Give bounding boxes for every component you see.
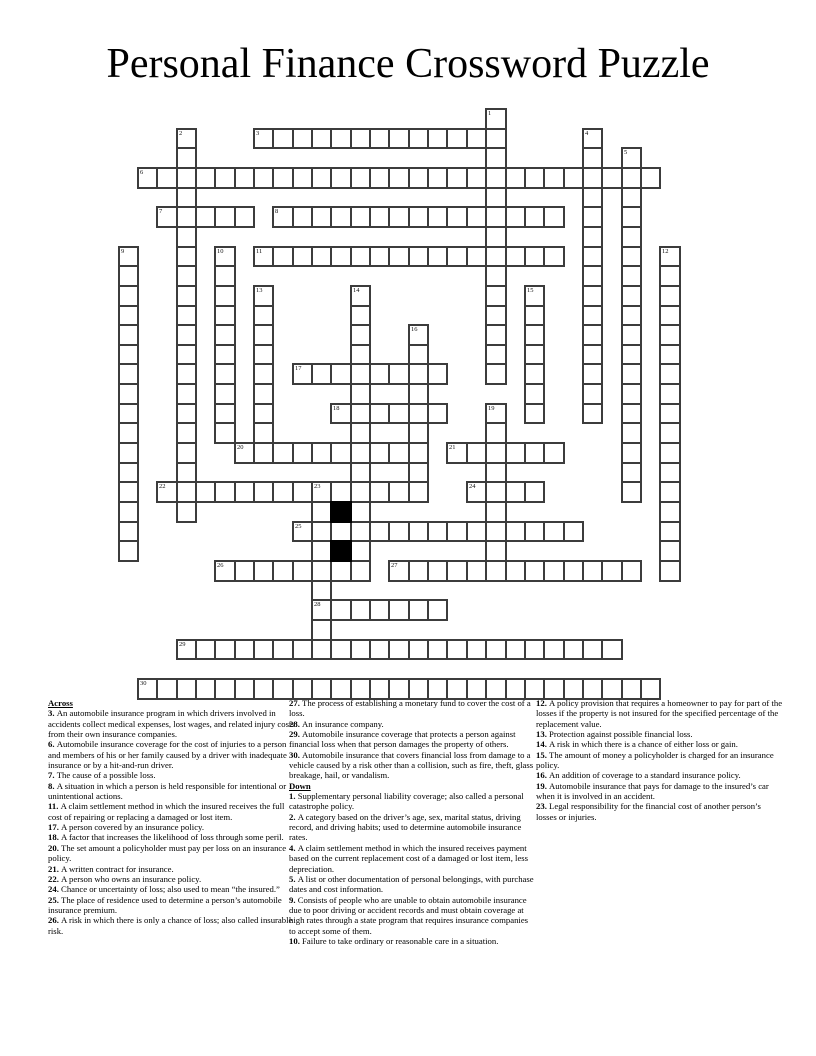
grid-cell[interactable] <box>253 344 274 365</box>
grid-cell[interactable] <box>427 128 448 149</box>
grid-cell[interactable] <box>659 462 681 483</box>
grid-cell[interactable] <box>582 206 603 228</box>
grid-cell[interactable] <box>427 560 448 582</box>
grid-cell[interactable] <box>195 678 216 700</box>
grid-cell[interactable] <box>659 501 681 523</box>
grid-cell[interactable] <box>408 560 429 582</box>
grid-cell[interactable] <box>659 344 681 365</box>
grid-cell[interactable] <box>543 521 565 542</box>
grid-cell[interactable] <box>582 560 603 582</box>
grid-cell[interactable] <box>601 560 623 582</box>
grid-cell[interactable] <box>292 639 313 660</box>
grid-cell[interactable] <box>427 403 448 424</box>
grid-cell[interactable] <box>621 383 642 405</box>
grid-cell[interactable] <box>292 246 313 267</box>
grid-cell[interactable]: 19 <box>485 403 507 424</box>
grid-cell[interactable] <box>640 167 661 189</box>
grid-cell[interactable] <box>350 560 371 582</box>
grid-cell[interactable] <box>253 481 274 503</box>
grid-cell[interactable]: 14 <box>350 285 371 307</box>
grid-cell[interactable]: 3 <box>253 128 274 149</box>
grid-cell[interactable] <box>505 442 526 464</box>
grid-cell[interactable] <box>272 167 294 189</box>
grid-cell[interactable] <box>659 422 681 444</box>
grid-cell[interactable]: 2 <box>176 128 197 149</box>
grid-cell[interactable]: 13 <box>253 285 274 307</box>
grid-cell[interactable] <box>118 324 139 346</box>
grid-cell[interactable] <box>659 285 681 307</box>
grid-cell[interactable] <box>176 226 197 248</box>
grid-cell[interactable] <box>563 560 584 582</box>
grid-cell[interactable] <box>485 678 507 700</box>
grid-cell[interactable] <box>659 265 681 287</box>
grid-cell[interactable] <box>214 422 236 444</box>
grid-cell[interactable]: 21 <box>446 442 468 464</box>
grid-cell[interactable] <box>118 540 139 562</box>
grid-cell[interactable] <box>485 462 507 483</box>
grid-cell[interactable] <box>350 383 371 405</box>
grid-cell[interactable] <box>485 324 507 346</box>
grid-cell[interactable]: 12 <box>659 246 681 267</box>
grid-cell[interactable] <box>466 442 487 464</box>
grid-cell[interactable] <box>195 206 216 228</box>
grid-cell[interactable] <box>350 442 371 464</box>
grid-cell[interactable] <box>369 599 390 621</box>
grid-cell[interactable] <box>330 678 352 700</box>
grid-cell[interactable] <box>543 167 565 189</box>
grid-cell[interactable]: 7 <box>156 206 178 228</box>
grid-cell[interactable] <box>621 226 642 248</box>
grid-cell[interactable] <box>582 678 603 700</box>
grid-cell[interactable] <box>408 639 429 660</box>
grid-cell[interactable]: 8 <box>272 206 294 228</box>
grid-cell[interactable] <box>524 481 545 503</box>
grid-cell[interactable] <box>214 383 236 405</box>
grid-cell[interactable] <box>311 442 332 464</box>
grid-cell[interactable] <box>311 619 332 641</box>
grid-cell[interactable] <box>582 226 603 248</box>
grid-cell[interactable] <box>427 678 448 700</box>
grid-cell[interactable] <box>446 678 468 700</box>
grid-cell[interactable] <box>272 481 294 503</box>
grid-cell[interactable] <box>427 206 448 228</box>
grid-cell[interactable] <box>253 305 274 326</box>
grid-cell[interactable] <box>621 560 642 582</box>
grid-cell[interactable] <box>253 383 274 405</box>
grid-cell[interactable] <box>505 560 526 582</box>
grid-cell[interactable] <box>408 167 429 189</box>
grid-cell[interactable] <box>524 639 545 660</box>
grid-cell[interactable] <box>156 678 178 700</box>
grid-cell[interactable] <box>485 639 507 660</box>
grid-cell[interactable] <box>408 246 429 267</box>
grid-cell[interactable] <box>505 246 526 267</box>
grid-cell[interactable] <box>176 481 197 503</box>
grid-cell[interactable] <box>408 344 429 365</box>
grid-cell[interactable]: 18 <box>330 403 352 424</box>
grid-cell[interactable] <box>659 560 681 582</box>
grid-cell[interactable]: 16 <box>408 324 429 346</box>
grid-cell[interactable] <box>369 403 390 424</box>
grid-cell[interactable] <box>505 206 526 228</box>
grid-cell[interactable] <box>272 246 294 267</box>
grid-cell[interactable] <box>311 128 332 149</box>
grid-cell[interactable] <box>176 383 197 405</box>
grid-cell[interactable] <box>214 344 236 365</box>
grid-cell[interactable] <box>330 599 352 621</box>
grid-cell[interactable] <box>292 560 313 582</box>
grid-cell[interactable] <box>582 167 603 189</box>
grid-cell[interactable] <box>524 363 545 385</box>
grid-cell[interactable] <box>563 167 584 189</box>
grid-cell[interactable] <box>388 167 410 189</box>
grid-cell[interactable] <box>330 521 352 542</box>
grid-cell[interactable] <box>563 521 584 542</box>
grid-cell[interactable] <box>466 167 487 189</box>
grid-cell[interactable] <box>176 324 197 346</box>
grid-cell[interactable] <box>311 363 332 385</box>
grid-cell[interactable] <box>427 639 448 660</box>
grid-cell[interactable] <box>621 285 642 307</box>
grid-cell[interactable] <box>118 344 139 365</box>
grid-cell[interactable] <box>195 481 216 503</box>
grid-cell[interactable] <box>350 501 371 523</box>
grid-cell[interactable] <box>369 481 390 503</box>
grid-cell[interactable] <box>176 167 197 189</box>
grid-cell[interactable] <box>659 442 681 464</box>
grid-cell[interactable]: 11 <box>253 246 274 267</box>
grid-cell[interactable] <box>234 639 255 660</box>
grid-cell[interactable] <box>408 462 429 483</box>
grid-cell[interactable] <box>195 639 216 660</box>
grid-cell[interactable] <box>176 187 197 208</box>
grid-cell[interactable] <box>485 128 507 149</box>
grid-cell[interactable] <box>311 540 332 562</box>
grid-cell[interactable] <box>621 206 642 228</box>
grid-cell[interactable] <box>466 639 487 660</box>
grid-cell[interactable]: 22 <box>156 481 178 503</box>
grid-cell[interactable] <box>176 305 197 326</box>
grid-cell[interactable] <box>330 560 352 582</box>
grid-cell[interactable]: 9 <box>118 246 139 267</box>
grid-cell[interactable] <box>176 344 197 365</box>
grid-cell[interactable] <box>485 246 507 267</box>
grid-cell[interactable] <box>330 167 352 189</box>
grid-cell[interactable] <box>427 167 448 189</box>
grid-cell[interactable] <box>350 462 371 483</box>
grid-cell[interactable] <box>388 363 410 385</box>
grid-cell[interactable] <box>214 481 236 503</box>
grid-cell[interactable] <box>621 246 642 267</box>
grid-cell[interactable] <box>485 206 507 228</box>
grid-cell[interactable] <box>408 363 429 385</box>
grid-cell[interactable] <box>118 403 139 424</box>
grid-cell[interactable]: 15 <box>524 285 545 307</box>
grid-cell[interactable] <box>485 226 507 248</box>
grid-cell[interactable] <box>350 639 371 660</box>
grid-cell[interactable] <box>350 246 371 267</box>
grid-cell[interactable] <box>582 265 603 287</box>
grid-cell[interactable] <box>582 147 603 169</box>
grid-cell[interactable] <box>543 442 565 464</box>
grid-cell[interactable] <box>621 187 642 208</box>
grid-cell[interactable] <box>582 305 603 326</box>
grid-cell[interactable] <box>621 422 642 444</box>
grid-cell[interactable] <box>408 206 429 228</box>
grid-cell[interactable] <box>601 639 623 660</box>
grid-cell[interactable] <box>369 639 390 660</box>
grid-cell[interactable] <box>485 501 507 523</box>
grid-cell[interactable] <box>485 285 507 307</box>
grid-cell[interactable] <box>118 285 139 307</box>
grid-cell[interactable] <box>563 678 584 700</box>
grid-cell[interactable] <box>621 167 642 189</box>
grid-cell[interactable] <box>446 167 468 189</box>
grid-cell[interactable] <box>543 678 565 700</box>
grid-cell[interactable] <box>524 324 545 346</box>
grid-cell[interactable] <box>311 206 332 228</box>
grid-cell[interactable] <box>176 403 197 424</box>
grid-cell[interactable] <box>485 422 507 444</box>
grid-cell[interactable]: 10 <box>214 246 236 267</box>
grid-cell[interactable] <box>408 442 429 464</box>
grid-cell[interactable] <box>176 147 197 169</box>
grid-cell[interactable] <box>311 639 332 660</box>
grid-cell[interactable] <box>350 599 371 621</box>
grid-cell[interactable] <box>350 324 371 346</box>
grid-cell[interactable] <box>621 462 642 483</box>
grid-cell[interactable] <box>176 206 197 228</box>
grid-cell[interactable] <box>446 521 468 542</box>
grid-cell[interactable] <box>234 560 255 582</box>
grid-cell[interactable] <box>330 363 352 385</box>
grid-cell[interactable] <box>408 422 429 444</box>
grid-cell[interactable] <box>659 540 681 562</box>
grid-cell[interactable] <box>659 481 681 503</box>
grid-cell[interactable]: 17 <box>292 363 313 385</box>
grid-cell[interactable] <box>253 560 274 582</box>
grid-cell[interactable] <box>214 206 236 228</box>
grid-cell[interactable] <box>524 678 545 700</box>
grid-cell[interactable] <box>543 246 565 267</box>
grid-cell[interactable] <box>350 521 371 542</box>
grid-cell[interactable] <box>350 678 371 700</box>
grid-cell[interactable] <box>621 403 642 424</box>
grid-cell[interactable] <box>621 265 642 287</box>
grid-cell[interactable] <box>350 403 371 424</box>
grid-cell[interactable] <box>176 422 197 444</box>
grid-cell[interactable] <box>214 265 236 287</box>
grid-cell[interactable] <box>350 422 371 444</box>
grid-cell[interactable] <box>330 442 352 464</box>
grid-cell[interactable] <box>330 206 352 228</box>
grid-cell[interactable] <box>524 246 545 267</box>
grid-cell[interactable] <box>388 639 410 660</box>
grid-cell[interactable] <box>485 560 507 582</box>
grid-cell[interactable] <box>311 246 332 267</box>
grid-cell[interactable] <box>350 344 371 365</box>
grid-cell[interactable] <box>253 422 274 444</box>
grid-cell[interactable] <box>292 128 313 149</box>
grid-cell[interactable] <box>272 560 294 582</box>
grid-cell[interactable] <box>582 187 603 208</box>
grid-cell[interactable]: 23 <box>311 481 332 503</box>
grid-cell[interactable] <box>388 246 410 267</box>
grid-cell[interactable] <box>118 422 139 444</box>
grid-cell[interactable]: 30 <box>137 678 158 700</box>
grid-cell[interactable] <box>524 167 545 189</box>
grid-cell[interactable] <box>350 481 371 503</box>
grid-cell[interactable]: 5 <box>621 147 642 169</box>
grid-cell[interactable] <box>563 639 584 660</box>
grid-cell[interactable] <box>118 501 139 523</box>
grid-cell[interactable] <box>621 344 642 365</box>
grid-cell[interactable] <box>466 521 487 542</box>
grid-cell[interactable] <box>427 521 448 542</box>
grid-cell[interactable] <box>582 403 603 424</box>
grid-cell[interactable] <box>408 521 429 542</box>
grid-cell[interactable] <box>350 167 371 189</box>
grid-cell[interactable] <box>505 639 526 660</box>
grid-cell[interactable] <box>582 285 603 307</box>
grid-cell[interactable] <box>466 128 487 149</box>
grid-cell[interactable] <box>621 363 642 385</box>
grid-cell[interactable] <box>311 521 332 542</box>
grid-cell[interactable] <box>659 521 681 542</box>
grid-cell[interactable] <box>311 501 332 523</box>
grid-cell[interactable] <box>253 324 274 346</box>
grid-cell[interactable] <box>118 305 139 326</box>
grid-cell[interactable]: 25 <box>292 521 313 542</box>
grid-cell[interactable] <box>621 442 642 464</box>
grid-cell[interactable] <box>350 363 371 385</box>
grid-cell[interactable] <box>118 521 139 542</box>
grid-cell[interactable] <box>524 344 545 365</box>
grid-cell[interactable] <box>485 265 507 287</box>
grid-cell[interactable] <box>446 128 468 149</box>
grid-cell[interactable] <box>118 442 139 464</box>
grid-cell[interactable] <box>176 265 197 287</box>
grid-cell[interactable] <box>156 167 178 189</box>
grid-cell[interactable] <box>350 305 371 326</box>
grid-cell[interactable]: 28 <box>311 599 332 621</box>
grid-cell[interactable] <box>524 403 545 424</box>
grid-cell[interactable] <box>446 206 468 228</box>
grid-cell[interactable] <box>369 246 390 267</box>
grid-cell[interactable] <box>176 462 197 483</box>
grid-cell[interactable] <box>292 206 313 228</box>
grid-cell[interactable] <box>214 678 236 700</box>
grid-cell[interactable] <box>118 383 139 405</box>
grid-cell[interactable] <box>505 678 526 700</box>
grid-cell[interactable] <box>311 580 332 601</box>
grid-cell[interactable] <box>408 481 429 503</box>
grid-cell[interactable] <box>582 363 603 385</box>
grid-cell[interactable] <box>388 678 410 700</box>
grid-cell[interactable] <box>272 678 294 700</box>
grid-cell[interactable] <box>659 383 681 405</box>
grid-cell[interactable] <box>446 639 468 660</box>
grid-cell[interactable] <box>621 305 642 326</box>
grid-cell[interactable] <box>272 639 294 660</box>
grid-cell[interactable] <box>485 167 507 189</box>
grid-cell[interactable] <box>466 246 487 267</box>
grid-cell[interactable] <box>582 383 603 405</box>
grid-cell[interactable] <box>214 324 236 346</box>
grid-cell[interactable] <box>234 167 255 189</box>
grid-cell[interactable] <box>485 187 507 208</box>
grid-cell[interactable] <box>388 521 410 542</box>
grid-cell[interactable] <box>330 246 352 267</box>
grid-cell[interactable] <box>524 521 545 542</box>
grid-cell[interactable] <box>292 678 313 700</box>
grid-cell[interactable] <box>311 560 332 582</box>
grid-cell[interactable] <box>388 206 410 228</box>
grid-cell[interactable] <box>659 305 681 326</box>
grid-cell[interactable] <box>214 639 236 660</box>
grid-cell[interactable] <box>388 403 410 424</box>
grid-cell[interactable] <box>427 363 448 385</box>
grid-cell[interactable]: 6 <box>137 167 158 189</box>
grid-cell[interactable]: 4 <box>582 128 603 149</box>
grid-cell[interactable] <box>485 540 507 562</box>
grid-cell[interactable] <box>195 167 216 189</box>
grid-cell[interactable] <box>272 442 294 464</box>
grid-cell[interactable] <box>350 206 371 228</box>
grid-cell[interactable] <box>659 403 681 424</box>
grid-cell[interactable] <box>330 639 352 660</box>
grid-cell[interactable] <box>543 560 565 582</box>
grid-cell[interactable] <box>311 678 332 700</box>
grid-cell[interactable] <box>369 206 390 228</box>
grid-cell[interactable] <box>466 678 487 700</box>
grid-cell[interactable] <box>582 639 603 660</box>
grid-cell[interactable] <box>408 128 429 149</box>
grid-cell[interactable]: 29 <box>176 639 197 660</box>
grid-cell[interactable] <box>214 305 236 326</box>
grid-cell[interactable] <box>446 246 468 267</box>
grid-cell[interactable] <box>485 344 507 365</box>
grid-cell[interactable] <box>601 167 623 189</box>
grid-cell[interactable] <box>330 481 352 503</box>
grid-cell[interactable] <box>369 363 390 385</box>
grid-cell[interactable] <box>543 206 565 228</box>
grid-cell[interactable] <box>601 678 623 700</box>
grid-cell[interactable] <box>253 363 274 385</box>
grid-cell[interactable] <box>369 678 390 700</box>
grid-cell[interactable] <box>485 521 507 542</box>
grid-cell[interactable] <box>350 128 371 149</box>
grid-cell[interactable] <box>524 206 545 228</box>
grid-cell[interactable]: 20 <box>234 442 255 464</box>
grid-cell[interactable] <box>214 403 236 424</box>
grid-cell[interactable] <box>524 305 545 326</box>
grid-cell[interactable] <box>505 481 526 503</box>
grid-cell[interactable] <box>485 442 507 464</box>
grid-cell[interactable] <box>659 324 681 346</box>
grid-cell[interactable] <box>253 678 274 700</box>
grid-cell[interactable] <box>659 363 681 385</box>
grid-cell[interactable] <box>582 246 603 267</box>
grid-cell[interactable] <box>369 442 390 464</box>
grid-cell[interactable] <box>234 481 255 503</box>
grid-cell[interactable] <box>408 678 429 700</box>
grid-cell[interactable] <box>524 442 545 464</box>
grid-cell[interactable] <box>253 639 274 660</box>
grid-cell[interactable] <box>118 481 139 503</box>
grid-cell[interactable] <box>176 246 197 267</box>
grid-cell[interactable] <box>485 481 507 503</box>
